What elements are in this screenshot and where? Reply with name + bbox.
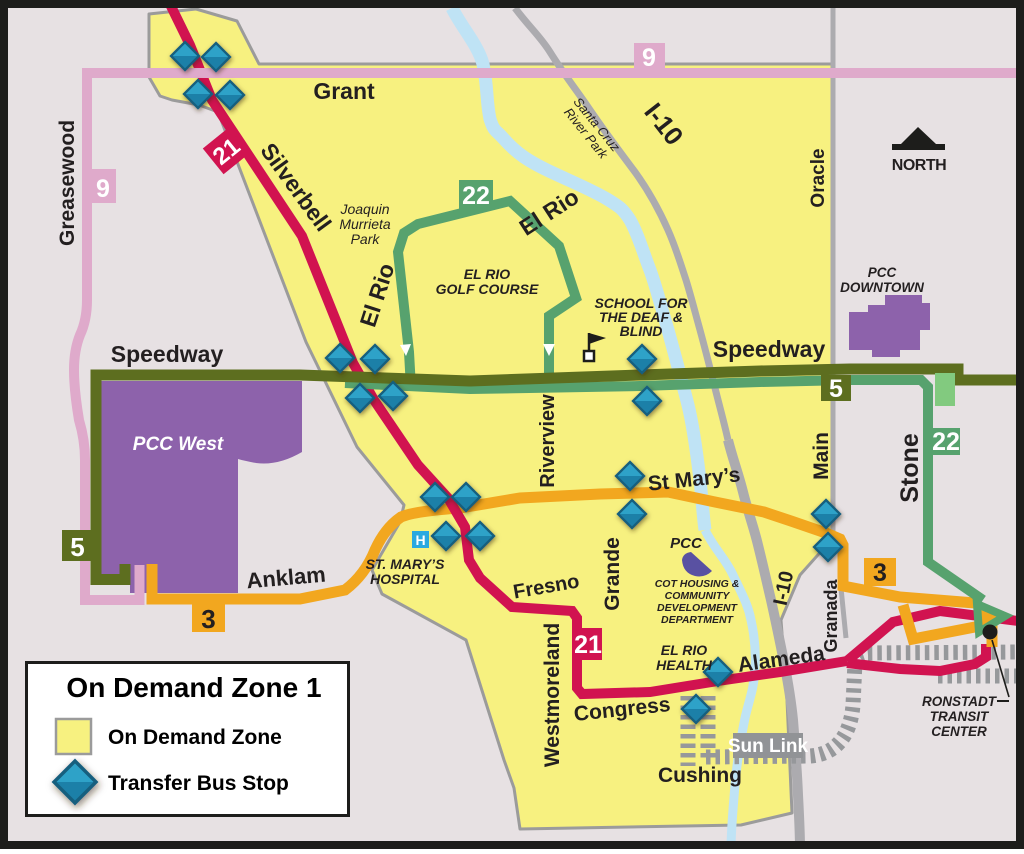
svg-text:ST. MARY’S: ST. MARY’S	[366, 556, 445, 572]
svg-text:9: 9	[642, 44, 656, 72]
svg-text:Sun Link: Sun Link	[728, 736, 809, 757]
svg-text:RONSTADT: RONSTADT	[922, 694, 998, 709]
svg-text:PCC: PCC	[868, 265, 897, 280]
svg-text:PCC: PCC	[670, 535, 703, 552]
svg-text:Joaquin: Joaquin	[339, 201, 389, 217]
svg-text:5: 5	[70, 532, 84, 562]
svg-text:Cushing: Cushing	[658, 764, 742, 787]
svg-text:GOLF COURSE: GOLF COURSE	[436, 281, 539, 297]
svg-text:NORTH: NORTH	[892, 157, 946, 174]
svg-text:Riverview: Riverview	[537, 394, 559, 488]
svg-text:DEPARTMENT: DEPARTMENT	[661, 614, 735, 626]
svg-text:Greasewood: Greasewood	[56, 120, 79, 246]
svg-text:Granada: Granada	[821, 578, 841, 652]
svg-text:PCC West: PCC West	[133, 434, 224, 455]
svg-text:Transfer Bus Stop: Transfer Bus Stop	[108, 772, 289, 795]
svg-text:BLIND: BLIND	[620, 323, 663, 339]
svg-text:EL RIO: EL RIO	[661, 642, 708, 658]
svg-text:Stone: Stone	[896, 433, 924, 503]
svg-text:Westmoreland: Westmoreland	[541, 623, 564, 767]
svg-text:DOWNTOWN: DOWNTOWN	[840, 280, 924, 295]
svg-text:Oracle: Oracle	[808, 148, 829, 207]
svg-text:Speedway: Speedway	[713, 336, 826, 362]
svg-text:CENTER: CENTER	[931, 724, 987, 739]
svg-text:Main: Main	[810, 432, 833, 480]
svg-text:22: 22	[932, 428, 960, 456]
svg-text:5: 5	[829, 375, 843, 403]
svg-text:COT HOUSING &: COT HOUSING &	[655, 578, 740, 590]
svg-text:H: H	[415, 532, 425, 548]
svg-text:On Demand Zone: On Demand Zone	[108, 726, 282, 749]
svg-text:22: 22	[462, 182, 490, 210]
svg-text:Speedway: Speedway	[111, 341, 224, 367]
svg-text:Grande: Grande	[601, 537, 624, 611]
svg-text:HOSPITAL: HOSPITAL	[370, 571, 440, 587]
svg-text:Park: Park	[351, 231, 381, 247]
svg-text:On Demand Zone 1: On Demand Zone 1	[66, 672, 321, 703]
svg-text:Grant: Grant	[313, 78, 375, 104]
svg-text:3: 3	[201, 604, 215, 634]
svg-text:HEALTH: HEALTH	[656, 657, 713, 673]
svg-text:Murrieta: Murrieta	[339, 216, 391, 232]
svg-text:DEVELOPMENT: DEVELOPMENT	[657, 602, 739, 614]
svg-text:3: 3	[873, 559, 887, 587]
svg-text:21: 21	[574, 631, 602, 659]
svg-text:TRANSIT: TRANSIT	[930, 709, 990, 724]
svg-text:9: 9	[96, 175, 110, 203]
svg-text:EL RIO: EL RIO	[464, 266, 511, 282]
svg-text:COMMUNITY: COMMUNITY	[665, 590, 731, 602]
